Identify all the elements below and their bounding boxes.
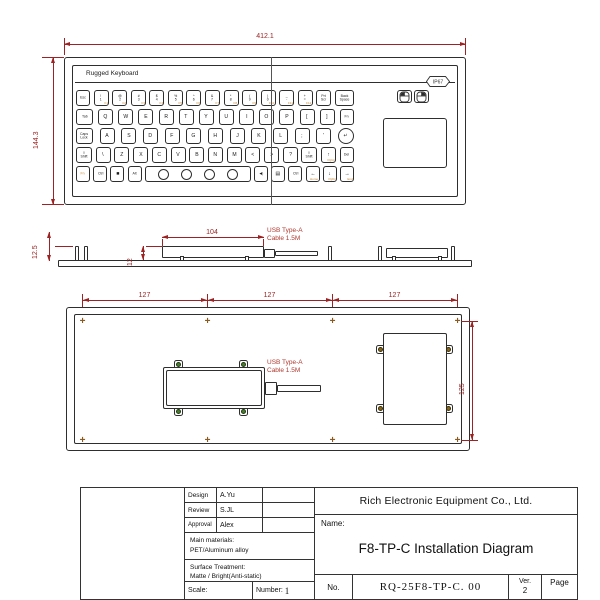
review-extra-cell: [262, 502, 315, 518]
approval-label-cell: Approval: [184, 517, 217, 533]
design-label-cell: Design: [184, 487, 217, 503]
version-value: 2: [523, 586, 527, 596]
number-label: Number:: [256, 587, 283, 594]
title-block-empty-cell: [80, 487, 185, 600]
scale-cell: Scale:: [184, 581, 253, 600]
materials-value: PET/Aluminum alloy: [190, 547, 249, 554]
diagram-name: F8-TP-C Installation Diagram: [315, 541, 577, 556]
approval-value-cell: Alex: [216, 517, 263, 533]
no-label-cell: No.: [314, 574, 353, 600]
surface-cell: Surface Treatment: Matte / Bright(Anti-s…: [184, 559, 315, 582]
number-value: 1: [285, 586, 290, 596]
page-cell: Page: [541, 574, 578, 600]
title-block: Design A.Yu Review S.JL Approval Alex Ma…: [0, 0, 600, 600]
surface-label: Surface Treatment:: [190, 564, 245, 571]
version-cell: Ver. 2: [508, 574, 542, 600]
name-label: Name:: [321, 519, 345, 528]
design-value-cell: A.Yu: [216, 487, 263, 503]
surface-value: Matte / Bright(Anti-static): [190, 573, 262, 580]
installation-diagram-sheet: 412.1 144.3 Rugged Keyboard Esc! 1F1@ 2F…: [0, 0, 600, 600]
review-label-cell: Review: [184, 502, 217, 518]
review-value-cell: S.JL: [216, 502, 263, 518]
version-label: Ver.: [519, 578, 531, 586]
no-value-cell: RQ-25F8-TP-C. 00: [352, 574, 509, 600]
number-cell: Number: 1: [252, 581, 315, 600]
name-cell: Name: F8-TP-C Installation Diagram: [314, 514, 578, 575]
design-extra-cell: [262, 487, 315, 503]
materials-label: Main materials:: [190, 537, 234, 544]
company-name-cell: Rich Electronic Equipment Co., Ltd.: [314, 487, 578, 515]
approval-extra-cell: [262, 517, 315, 533]
materials-cell: Main materials: PET/Aluminum alloy: [184, 532, 315, 560]
